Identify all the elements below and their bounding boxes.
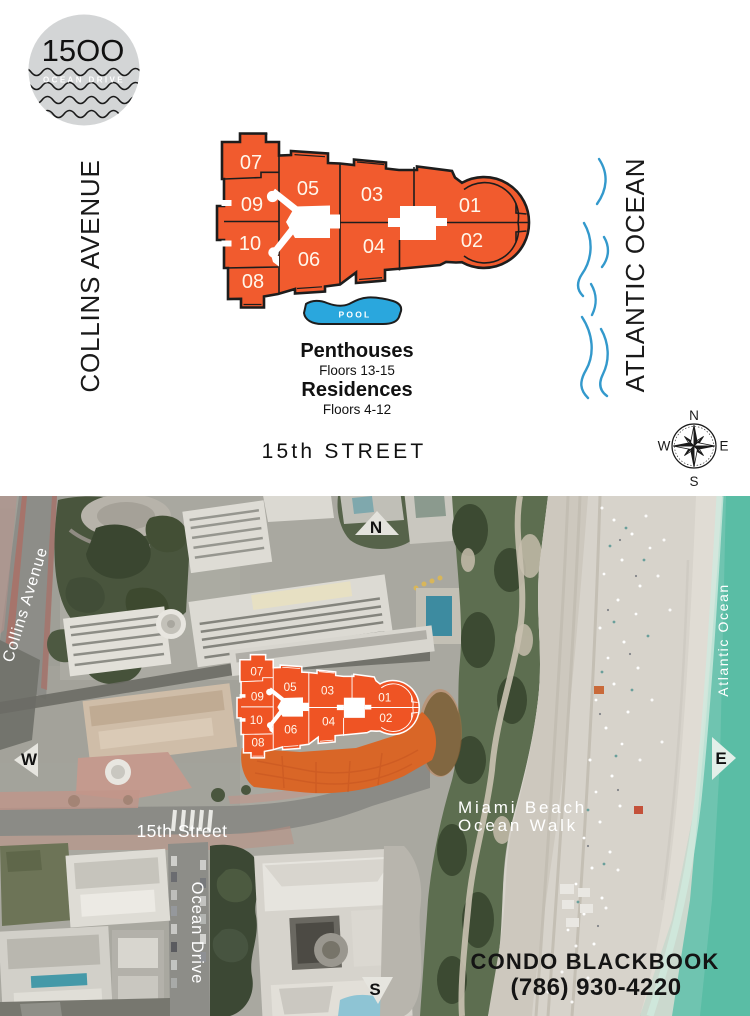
svg-text:ATLANTIC OCEAN: ATLANTIC OCEAN [620,158,650,393]
svg-text:Penthouses: Penthouses [300,340,413,362]
svg-text:S: S [689,474,698,489]
svg-text:Ocean Drive: Ocean Drive [188,882,206,985]
svg-text:POOL: POOL [339,310,372,320]
svg-text:E: E [719,439,728,454]
svg-text:Floors 13-15: Floors 13-15 [319,363,395,378]
svg-text:CONDO BLACKBOOK: CONDO BLACKBOOK [471,949,720,974]
svg-text:Floors 4-12: Floors 4-12 [323,402,391,417]
svg-text:Miami Beach: Miami Beach [458,798,587,817]
svg-text:Ocean Walk: Ocean Walk [458,816,578,835]
svg-text:15OO: 15OO [42,33,125,68]
svg-text:15th Street: 15th Street [136,821,227,841]
svg-text:W: W [21,750,38,769]
svg-text:Atlantic Ocean: Atlantic Ocean [715,583,731,696]
svg-text:(786) 930-4220: (786) 930-4220 [510,974,681,1001]
svg-text:OCEAN DRIVE: OCEAN DRIVE [43,76,125,85]
svg-text:E: E [715,749,726,768]
svg-text:15th STREET: 15th STREET [262,440,427,463]
svg-text:N: N [689,408,699,423]
svg-text:COLLINS AVENUE: COLLINS AVENUE [75,159,105,392]
svg-text:Residences: Residences [301,379,412,401]
svg-text:N: N [370,518,382,537]
svg-text:S: S [369,980,380,999]
svg-text:W: W [658,439,671,454]
